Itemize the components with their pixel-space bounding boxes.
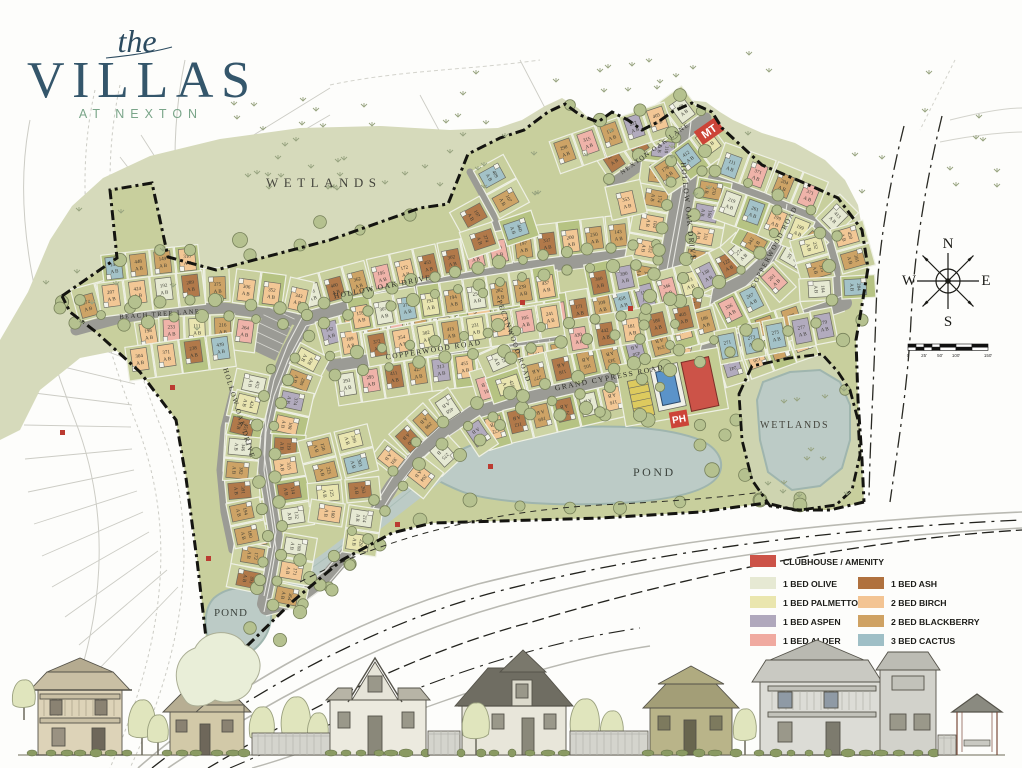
svg-text:A B: A B <box>160 290 169 296</box>
svg-text:A B: A B <box>353 486 359 495</box>
svg-text:250: 250 <box>590 233 599 239</box>
svg-text:50': 50' <box>937 353 943 358</box>
svg-text:233: 233 <box>167 325 175 330</box>
svg-text:A B: A B <box>321 489 327 498</box>
svg-text:1 BED ASPEN: 1 BED ASPEN <box>783 617 841 627</box>
svg-text:A B: A B <box>110 269 119 275</box>
svg-text:119: 119 <box>285 442 290 450</box>
svg-text:216: 216 <box>219 323 227 328</box>
svg-text:A B: A B <box>168 332 177 337</box>
svg-text:25': 25' <box>921 353 927 358</box>
svg-text:WETLANDS: WETLANDS <box>760 420 829 431</box>
svg-text:W: W <box>902 273 917 289</box>
svg-text:289: 289 <box>186 280 195 286</box>
svg-text:A B: A B <box>591 239 600 245</box>
svg-text:AT NEXTON: AT NEXTON <box>79 107 203 121</box>
svg-text:POND: POND <box>214 607 248 619</box>
svg-text:391: 391 <box>239 486 245 494</box>
svg-text:N: N <box>943 236 954 252</box>
svg-text:382: 382 <box>237 467 243 475</box>
svg-text:A B: A B <box>159 264 168 270</box>
svg-text:100': 100' <box>952 353 961 358</box>
svg-text:A B: A B <box>812 285 817 294</box>
svg-text:306: 306 <box>242 285 251 291</box>
svg-text:E: E <box>981 273 990 289</box>
svg-text:A B: A B <box>232 487 238 496</box>
svg-text:A B: A B <box>232 443 238 452</box>
svg-text:448: 448 <box>134 260 143 266</box>
svg-text:1 BED PALMETTO: 1 BED PALMETTO <box>783 598 858 608</box>
svg-text:A B: A B <box>135 266 144 272</box>
svg-text:200: 200 <box>566 235 575 241</box>
svg-text:A B: A B <box>193 331 202 336</box>
svg-text:150': 150' <box>984 353 993 358</box>
svg-text:264: 264 <box>241 326 250 332</box>
svg-text:A B: A B <box>615 237 624 243</box>
svg-text:125: 125 <box>328 489 334 497</box>
svg-text:1 BED ASH: 1 BED ASH <box>891 579 937 589</box>
svg-text:1 BED OLIVE: 1 BED OLIVE <box>783 579 837 589</box>
svg-text:439: 439 <box>216 343 225 349</box>
svg-text:A B: A B <box>230 466 236 475</box>
svg-text:313: 313 <box>437 365 446 371</box>
svg-text:164: 164 <box>819 285 824 293</box>
svg-text:346: 346 <box>239 443 245 451</box>
svg-text:263: 263 <box>360 486 366 494</box>
svg-text:207: 207 <box>107 290 116 296</box>
svg-text:POND: POND <box>633 465 676 479</box>
svg-text:149: 149 <box>159 257 167 263</box>
svg-text:3 BED CACTUS: 3 BED CACTUS <box>891 636 955 646</box>
svg-text:143: 143 <box>614 230 622 236</box>
svg-text:375: 375 <box>214 283 222 288</box>
svg-text:238: 238 <box>189 346 198 352</box>
svg-text:S: S <box>944 314 952 330</box>
svg-text:2 BED BLACKBERRY: 2 BED BLACKBERRY <box>891 617 980 627</box>
svg-text:284: 284 <box>855 283 860 291</box>
svg-text:A B: A B <box>848 283 853 292</box>
svg-text:VILLAS: VILLAS <box>27 52 260 109</box>
svg-text:A B: A B <box>187 287 196 293</box>
svg-text:424: 424 <box>133 287 142 293</box>
svg-text:192: 192 <box>160 284 169 290</box>
svg-text:A B: A B <box>437 371 446 377</box>
svg-text:A B: A B <box>520 248 529 254</box>
svg-text:455: 455 <box>460 362 469 368</box>
svg-text:352: 352 <box>268 288 277 294</box>
svg-text:337: 337 <box>543 238 552 244</box>
svg-text:CLUBHOUSE / AMENITY: CLUBHOUSE / AMENITY <box>783 557 884 567</box>
svg-text:WETLANDS: WETLANDS <box>266 175 382 190</box>
svg-text:2 BED BIRCH: 2 BED BIRCH <box>891 598 947 608</box>
